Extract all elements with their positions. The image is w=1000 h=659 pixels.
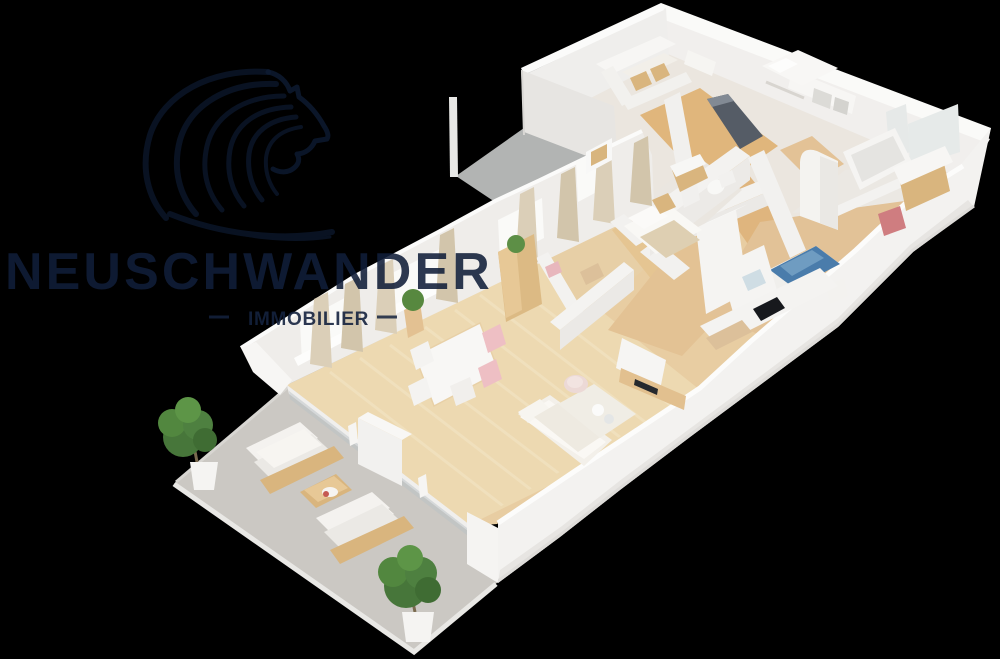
svg-text:NEUSCHWANDER: NEUSCHWANDER [5,243,493,301]
svg-text:IMMOBILIER: IMMOBILIER [248,309,369,330]
